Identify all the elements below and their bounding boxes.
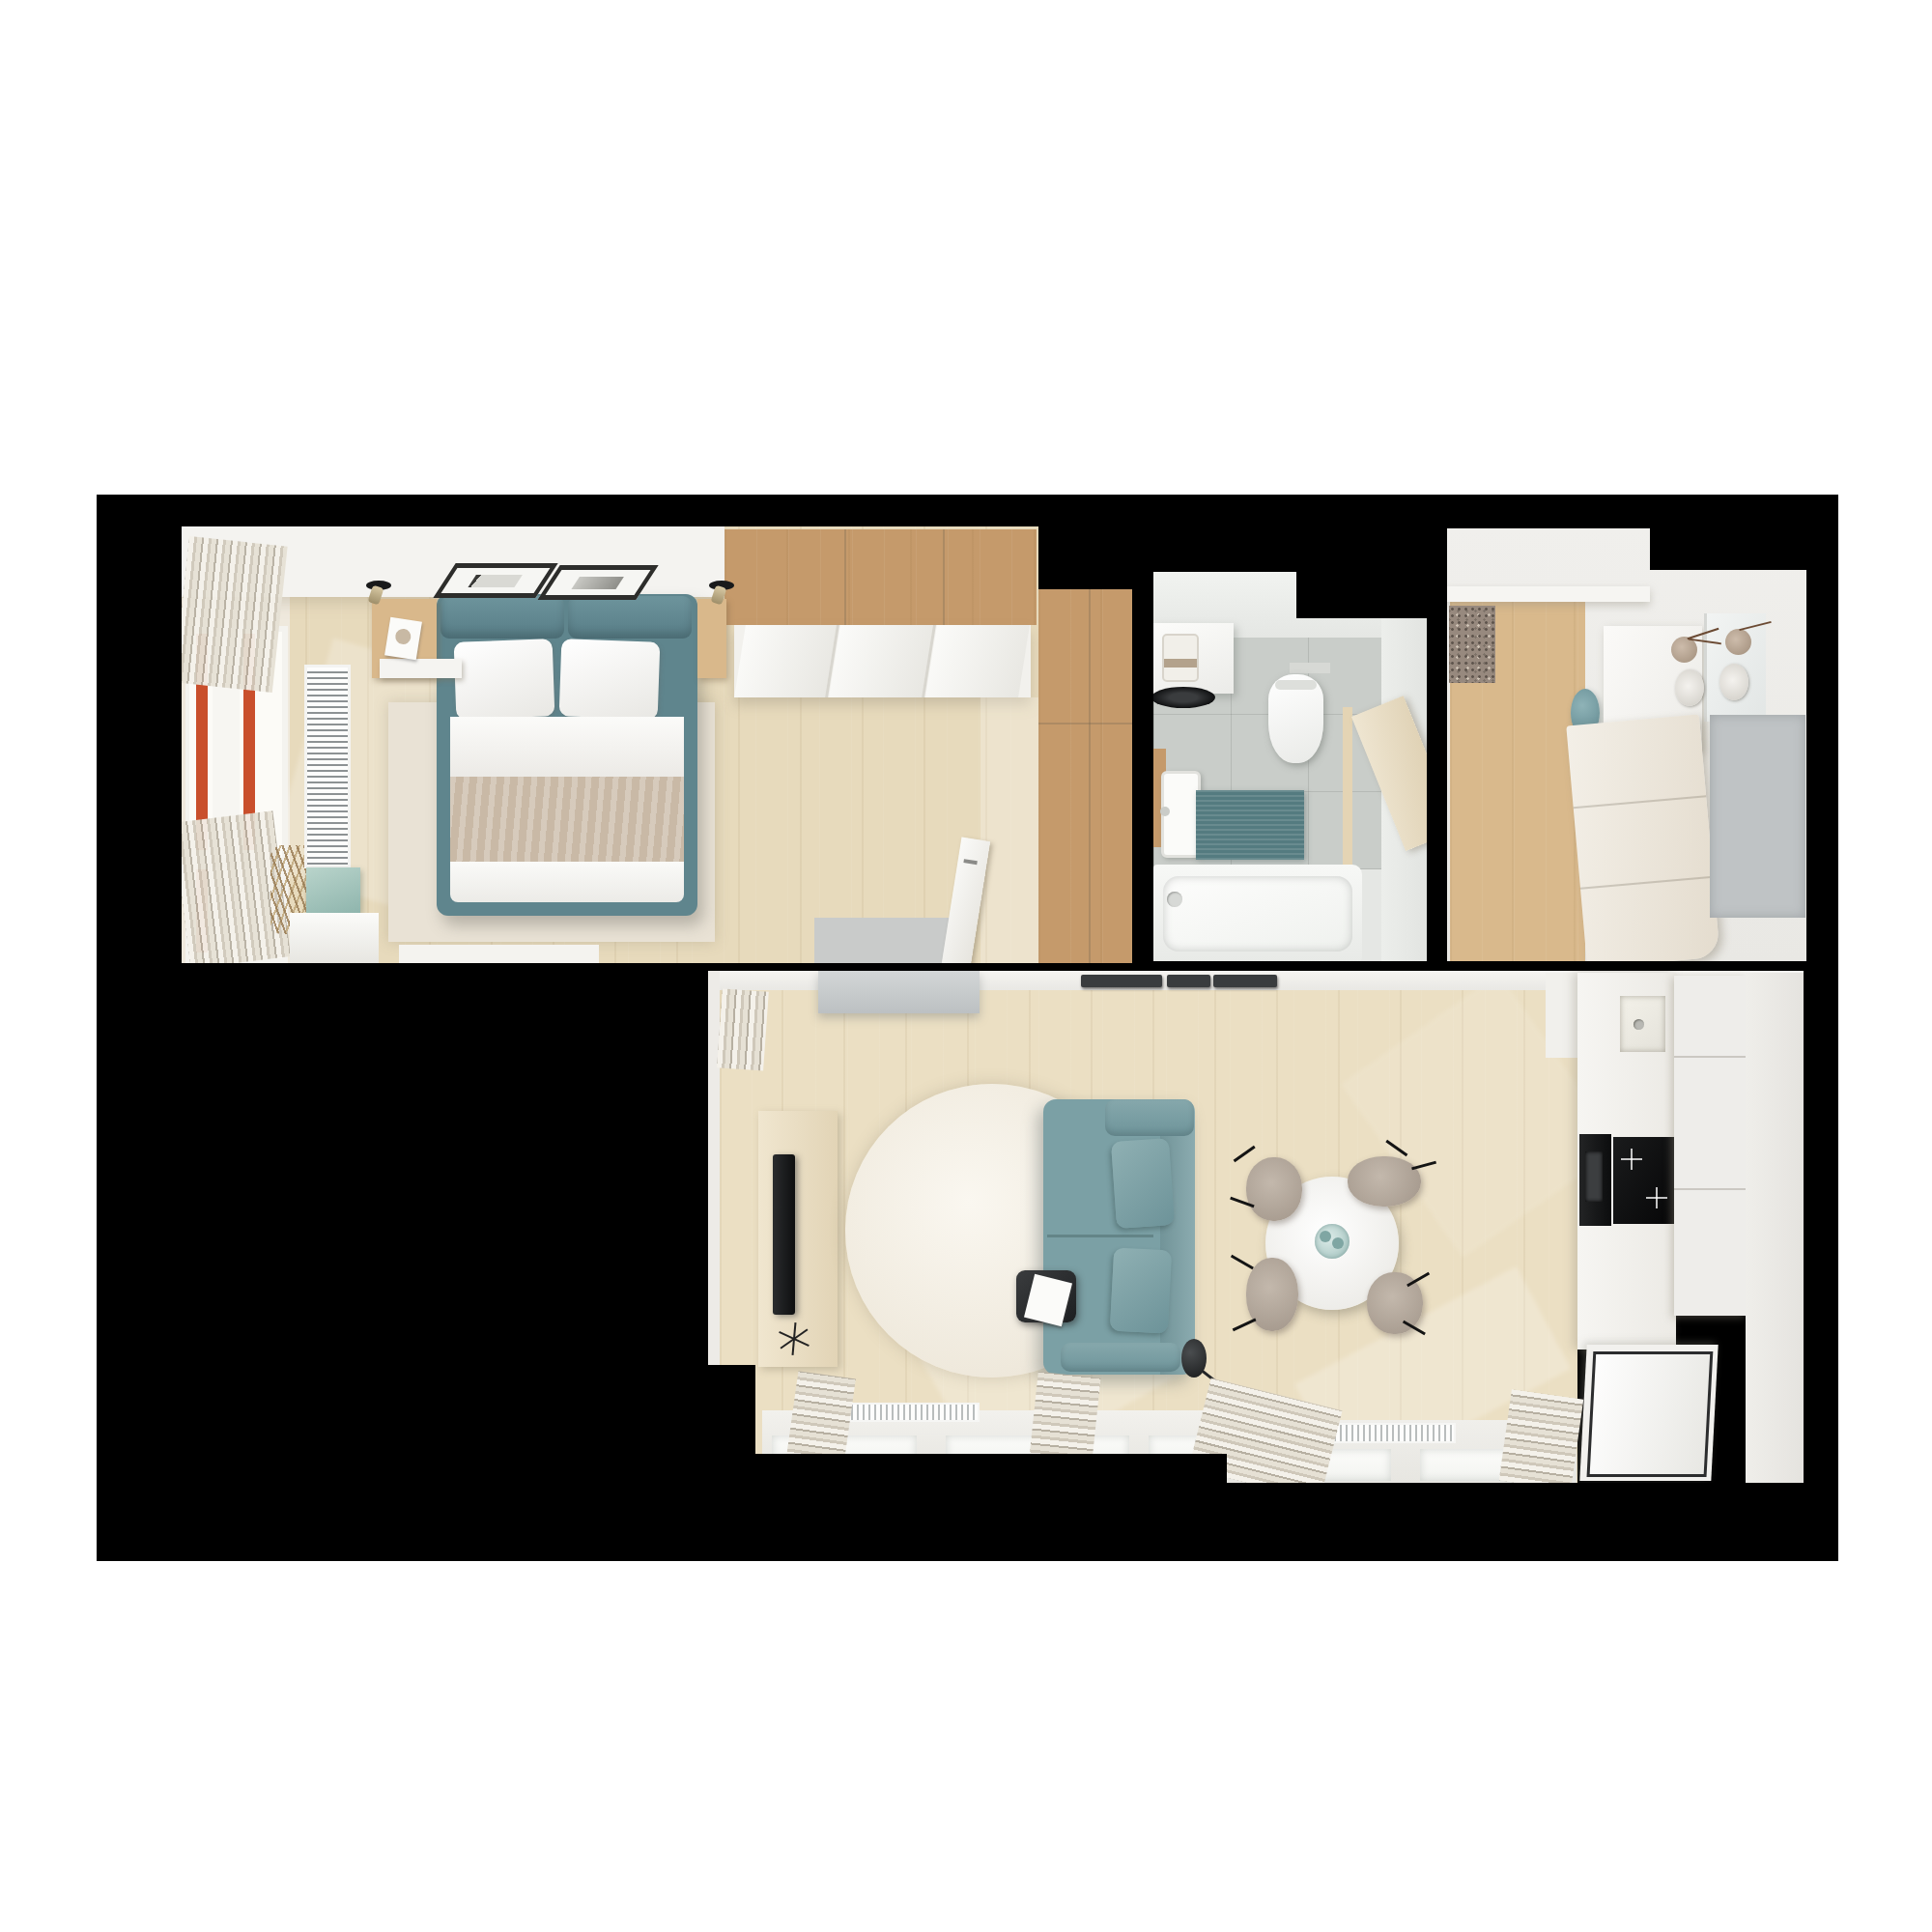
dark-doormat	[1167, 975, 1210, 987]
wardrobe-seam	[1089, 589, 1091, 963]
curtain-bundle	[786, 1371, 856, 1463]
dining-chair	[1348, 1156, 1421, 1207]
sofa-chaise	[1061, 1343, 1180, 1372]
ceiling-spotlight	[709, 581, 734, 590]
built-in-oven	[1579, 1134, 1611, 1226]
tv-board	[758, 1111, 838, 1367]
bed-blanket	[450, 777, 684, 862]
sliding-door	[734, 625, 839, 697]
cabinet-seam	[1574, 795, 1707, 809]
washbasin	[1161, 771, 1201, 858]
bathtub-basin	[1163, 876, 1352, 952]
kitchen-right-wall	[1746, 973, 1804, 1483]
ceiling-spotlight	[366, 581, 391, 590]
teal-bath-mat	[1196, 790, 1304, 860]
headboard-cushion	[568, 596, 692, 639]
dark-vessel-sink	[1153, 687, 1215, 708]
magazine-art	[394, 628, 412, 645]
cabinet-seam	[1580, 876, 1714, 890]
glass-centerpiece	[1315, 1224, 1350, 1259]
kitchen-end-panel	[1546, 973, 1579, 1058]
wardrobe-seam	[844, 529, 846, 625]
frame-art	[469, 575, 523, 587]
appliance-band	[1164, 659, 1197, 668]
tv-screen	[773, 1154, 795, 1315]
sofa-pillow	[1111, 1138, 1175, 1229]
kitchen-sink	[1620, 996, 1665, 1052]
curtain-bundle	[1499, 1389, 1583, 1483]
curtain-bundle	[182, 536, 288, 693]
render-page	[0, 0, 1932, 1932]
decor-plate	[1719, 664, 1748, 700]
render-notch	[1650, 528, 1806, 570]
bathtub-faucet	[1167, 892, 1182, 907]
shoe-cabinet	[1566, 714, 1719, 961]
burner-mark	[1646, 1187, 1667, 1208]
gray-console	[818, 971, 980, 1013]
white-dresser	[290, 913, 379, 963]
pillow	[559, 639, 661, 720]
basin-faucet	[1160, 807, 1170, 816]
decor-plate	[1675, 669, 1704, 706]
burner-mark	[1621, 1149, 1642, 1170]
headboard-cushion	[440, 596, 564, 639]
living-left-wall	[708, 971, 720, 1410]
floating-shelf	[380, 659, 462, 678]
bathtub	[1153, 865, 1362, 961]
sink-faucet	[1634, 1019, 1644, 1030]
pillow	[454, 639, 555, 720]
room-bedroom	[182, 526, 1132, 963]
render-notch	[1296, 572, 1427, 618]
oak-bedside-panel	[697, 599, 726, 678]
white-sliding-wardrobe	[734, 625, 1031, 697]
window-sill	[399, 945, 599, 963]
dark-doormat	[1081, 975, 1162, 987]
mint-storage-bench	[306, 867, 360, 913]
radiator	[304, 665, 351, 868]
sofa-seam	[1047, 1235, 1153, 1237]
dark-doormat	[1213, 975, 1277, 987]
ribbed-tall-cabinet	[1674, 976, 1747, 1316]
black-canvas	[97, 495, 1838, 1561]
sofa-pillow	[1110, 1247, 1172, 1333]
oak-tall-wardrobe	[1038, 589, 1132, 963]
induction-hob	[1613, 1137, 1676, 1224]
wardrobe-seam	[943, 529, 945, 625]
render-notch	[1038, 526, 1132, 589]
render-notch	[708, 1365, 755, 1483]
curtain-bundle	[1030, 1372, 1101, 1463]
wardrobe-seam	[1038, 723, 1132, 724]
render-notch	[755, 1454, 1227, 1483]
cabinet-seam	[1674, 1188, 1747, 1190]
toilet	[1268, 674, 1323, 763]
oak-overhead-wardrobe	[724, 529, 1037, 625]
mattress-end	[450, 862, 684, 902]
flush-plate	[1290, 663, 1330, 673]
glass-door	[1587, 1351, 1714, 1477]
cup	[1332, 1237, 1344, 1249]
oven-display	[1585, 1151, 1603, 1202]
door-handle	[963, 859, 977, 865]
sliding-door	[925, 625, 1030, 697]
speckled-doormat	[1449, 606, 1495, 683]
door-corridor	[980, 697, 1038, 963]
gray-mat	[1710, 715, 1805, 918]
cup	[1320, 1231, 1331, 1242]
sofa-armrest	[1105, 1099, 1194, 1136]
glass-front-cabinet	[1579, 1345, 1718, 1481]
sliding-door	[829, 625, 936, 697]
small-appliance	[1162, 634, 1199, 682]
hall-ceiling-step	[1447, 586, 1650, 602]
room-living-kitchen	[708, 971, 1804, 1483]
floor-lamp-head	[1181, 1339, 1207, 1378]
room-hall	[1447, 528, 1806, 961]
decor-vase	[1725, 629, 1751, 655]
frame-art	[572, 577, 624, 589]
room-bathroom	[1153, 572, 1427, 961]
radiator	[845, 1403, 980, 1422]
cabinet-seam	[1674, 1056, 1747, 1058]
door-frame	[1343, 707, 1352, 876]
dining-chair	[1246, 1157, 1302, 1221]
toilet-lid	[1275, 680, 1317, 690]
bed-sheet	[450, 717, 684, 777]
curtain-bundle	[717, 988, 769, 1070]
magazine	[384, 617, 422, 661]
